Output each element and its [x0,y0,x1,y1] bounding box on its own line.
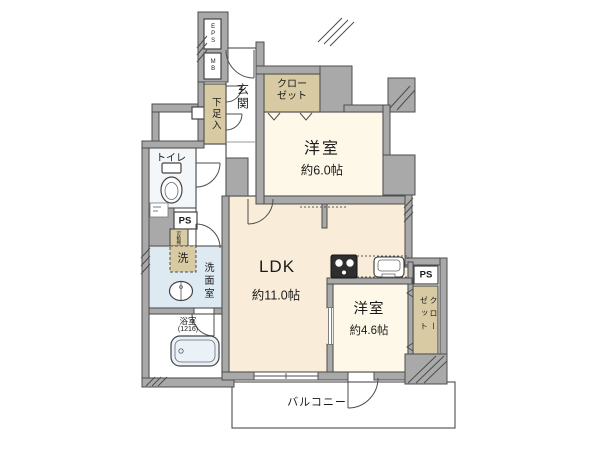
floorplan: EPS MB 玄関 下足入 クローゼット 洋室 約6.0帖 LDK 約11.0帖… [0,0,600,450]
washer-label: 洗 [178,252,189,265]
bath-name-label: 浴室 [179,316,196,326]
washbasin-icon [170,282,193,301]
bathtub-icon [171,336,219,366]
bedroom1-size-label: 約6.0帖 [301,164,343,179]
shoe-cabinet-label: 下足入 [204,86,226,142]
bath-size-label: (1216) [178,326,198,334]
ps-left-label: PS [179,215,192,226]
kitchen-sink-icon [374,257,404,277]
bedroom2-name-label: 洋室 [354,301,385,318]
toilet-label: トイレ [156,153,186,165]
bedroom2-size-label: 約4.6帖 [350,325,389,339]
floorplan-drawing [0,0,600,450]
toilet-icon [161,163,182,203]
bedroom2-sliding-door [327,308,333,344]
washroom-label: 洗面室 [199,256,215,306]
ldk-size-label: 約11.0帖 [252,289,300,304]
ldk-name-label: LDK [259,257,295,277]
ps-right-label: PS [420,269,433,280]
closet-top-label: クローゼット [275,79,309,103]
balcony-label: バルコニー [287,396,347,409]
bedroom1-name-label: 洋室 [304,139,340,158]
closet-right-label: クローゼット [414,296,438,342]
stove-icon [331,255,357,278]
entrance-label: 玄関 [235,83,249,111]
eps-label: EPS [204,19,221,49]
movable-shelf-label: 可動棚 [171,230,187,245]
small-label-box [150,203,168,217]
ldk-balcony-window [254,372,318,380]
mb-label: MB [204,53,221,79]
